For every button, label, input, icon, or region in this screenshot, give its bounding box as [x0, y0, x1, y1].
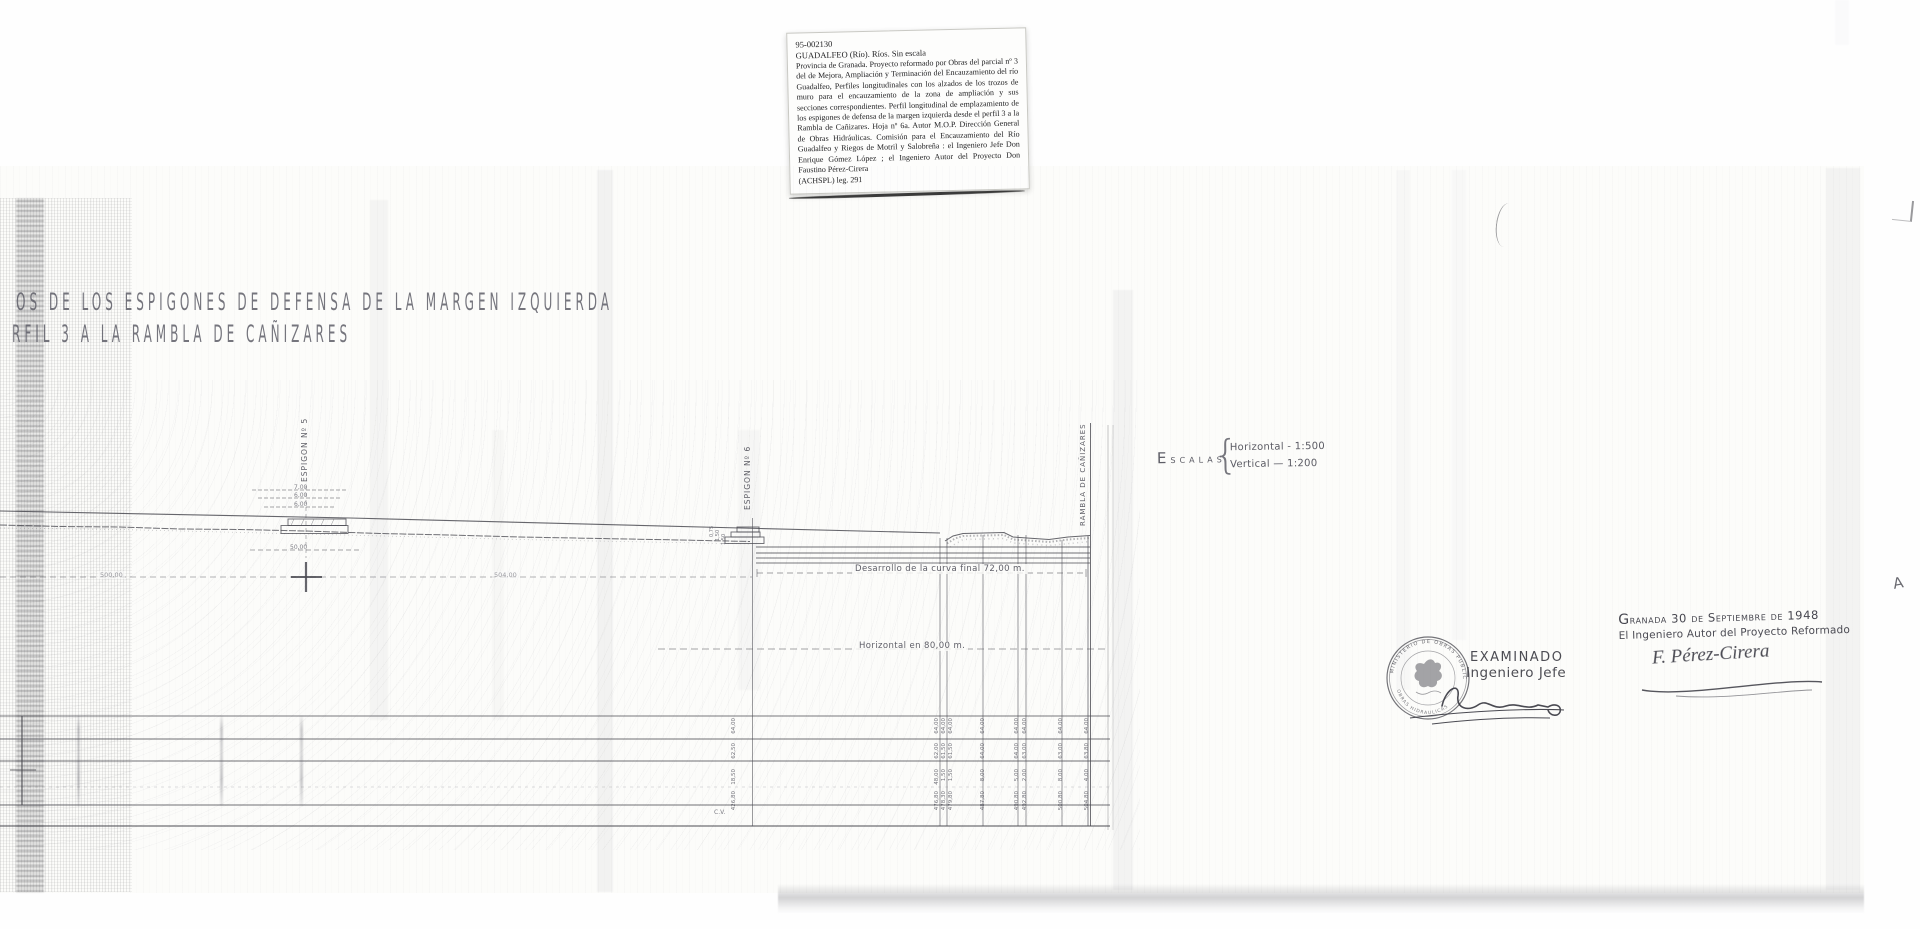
espigon5-dim-2: 6,00 [294, 492, 307, 499]
table-annotation-smudge [300, 716, 303, 806]
profile-drawing [0, 400, 1130, 845]
table-annotation-smudge [77, 716, 80, 806]
drawing-title-line1: OS DE LOS ESPIGONES DE DEFENSA DE LA MAR… [16, 288, 613, 316]
pencil-side-mark: A [1892, 573, 1905, 593]
annotation-horizontal-length: Horizontal en 80,00 m. [856, 641, 968, 651]
espigon5-dim-3: 6,00 [294, 501, 307, 508]
archive-label-card: 95-002130 GUADALFEO (Río). Ríos. Sin esc… [786, 27, 1030, 195]
scale-vertical: Vertical — 1:200 [1230, 458, 1318, 470]
annotation-corner-note: C.V. [714, 809, 725, 816]
scan-streak [1835, 0, 1849, 45]
espigon6-dim-3: 1,50 [722, 531, 727, 545]
paper-edge-mark [1892, 199, 1914, 222]
stamp-examinado-text: EXAMINADO [1470, 650, 1563, 665]
annotation-curve-length: Desarrollo de la curva final 72,00 m. [852, 564, 1028, 574]
scales-brace: { [1213, 432, 1239, 478]
author-signature-flourish [1636, 664, 1836, 704]
scales-block: Escalas { Horizontal - 1:500 Vertical — … [1150, 435, 1341, 488]
annotation-datum-left: 500,00 [98, 571, 125, 579]
scanned-drawing-sheet: 95-002130 GUADALFEO (Río). Ríos. Sin esc… [0, 0, 1920, 929]
espigon5-dim-1: 7,00 [294, 484, 307, 491]
date-block: Granada 30 de Septiembre de 1948 El Inge… [1618, 606, 1850, 642]
table-annotation-smudge [220, 716, 223, 806]
drawing-title-line2: RFIL 3 A LA RAMBLA DE CAÑIZARES [12, 320, 351, 348]
scale-horizontal: Horizontal - 1:500 [1230, 441, 1325, 453]
archive-label-body: Provincia de Granada. Proyecto reformado… [796, 56, 1021, 175]
espigon5-dim-4: 50,00 [290, 544, 307, 551]
examinado-signature [1406, 676, 1576, 728]
annotation-datum-mid: 504,00 [492, 571, 519, 579]
